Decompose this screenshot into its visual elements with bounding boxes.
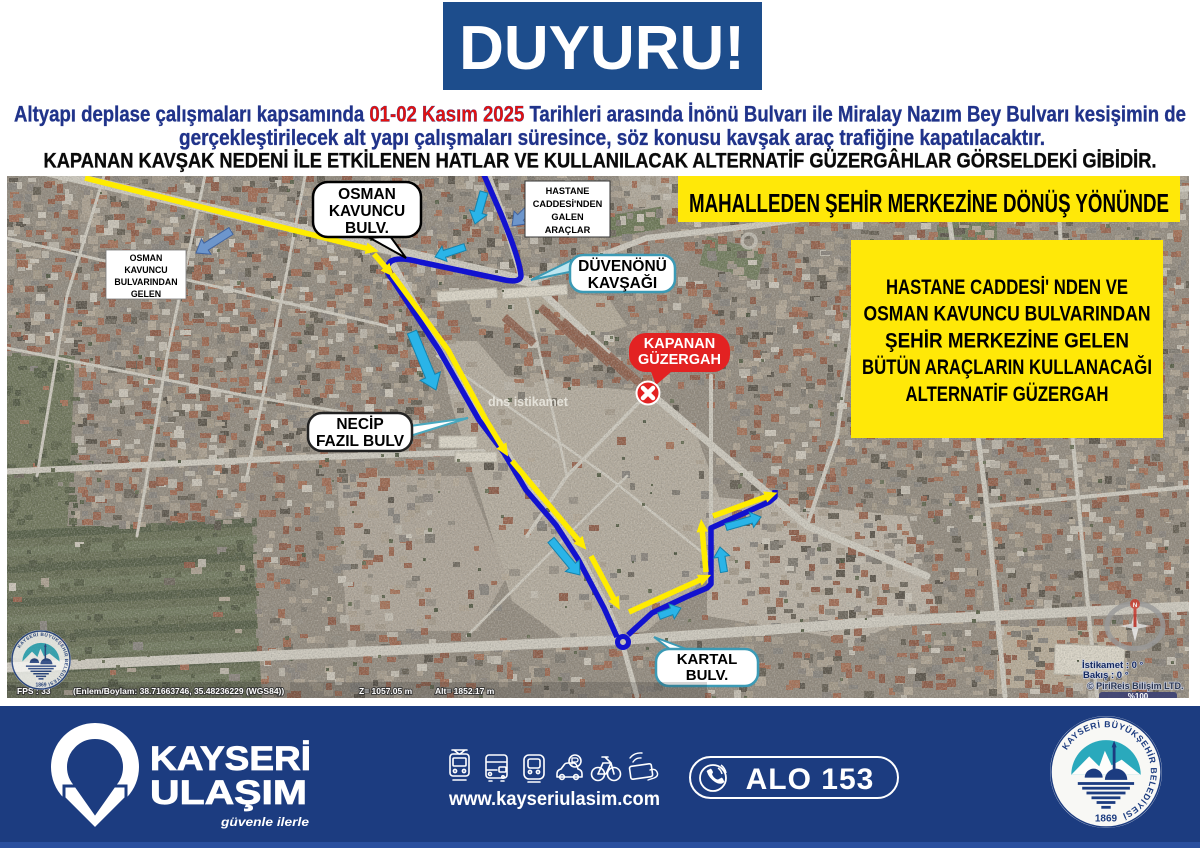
svg-text:KAPANAN: KAPANAN bbox=[644, 336, 715, 352]
svg-text:ALTERNATİF GÜZERGAH: ALTERNATİF GÜZERGAH bbox=[906, 383, 1109, 406]
svg-text:KAVŞAĞI: KAVŞAĞI bbox=[588, 274, 657, 292]
svg-text:NECİP: NECİP bbox=[336, 416, 383, 433]
svg-text:Alt= 1852.17 m: Alt= 1852.17 m bbox=[435, 686, 495, 696]
svg-text:Bakış : 0 °: Bakış : 0 ° bbox=[1083, 670, 1129, 681]
svg-text:DUYURU!: DUYURU! bbox=[459, 14, 745, 83]
svg-text:1869: 1869 bbox=[35, 682, 46, 688]
svg-text:FAZIL BULV: FAZIL BULV bbox=[316, 433, 405, 450]
svg-text:Z= 1057.05 m: Z= 1057.05 m bbox=[359, 686, 413, 696]
svg-text:ARAÇLAR: ARAÇLAR bbox=[545, 225, 591, 235]
svg-text:N: N bbox=[1133, 602, 1138, 609]
svg-text:BULVARINDAN: BULVARINDAN bbox=[114, 277, 177, 287]
svg-text:KAVUNCU: KAVUNCU bbox=[124, 265, 167, 275]
svg-text:HASTANE: HASTANE bbox=[546, 186, 590, 196]
svg-text:BÜTÜN ARAÇLARIN KULLANACAĞI: BÜTÜN ARAÇLARIN KULLANACAĞI bbox=[862, 355, 1152, 379]
svg-text:CADDESİ'NDEN: CADDESİ'NDEN bbox=[533, 199, 603, 209]
svg-text:GELEN: GELEN bbox=[131, 289, 161, 299]
svg-text:BULV.: BULV. bbox=[686, 667, 729, 684]
svg-text:KAPANAN KAVŞAK NEDENİ İLE ETKİ: KAPANAN KAVŞAK NEDENİ İLE ETKİLENEN HATL… bbox=[44, 148, 1157, 173]
svg-text:ALO 153: ALO 153 bbox=[746, 763, 875, 796]
svg-text:OSMAN: OSMAN bbox=[338, 186, 396, 203]
svg-text:GÜZERGAH: GÜZERGAH bbox=[638, 351, 721, 368]
svg-text:HASTANE CADDESİ' NDEN VE: HASTANE CADDESİ' NDEN VE bbox=[886, 276, 1128, 299]
svg-text:KARTAL: KARTAL bbox=[677, 651, 738, 668]
svg-text:gerçekleştirilecek alt yapı ça: gerçekleştirilecek alt yapı çalışmaları … bbox=[179, 125, 1045, 150]
svg-text:OSMAN KAVUNCU BULVARINDAN: OSMAN KAVUNCU BULVARINDAN bbox=[864, 303, 1151, 326]
svg-text:ŞEHİR MERKEZİNE GELEN: ŞEHİR MERKEZİNE GELEN bbox=[885, 329, 1129, 352]
svg-text:dns istikamet: dns istikamet bbox=[488, 395, 569, 409]
svg-text:BULV.: BULV. bbox=[345, 220, 389, 237]
svg-text:GALEN: GALEN bbox=[551, 212, 584, 222]
svg-text:MAHALLEDEN ŞEHİR MERKEZİNE DÖN: MAHALLEDEN ŞEHİR MERKEZİNE DÖNÜŞ YÖNÜNDE bbox=[689, 188, 1169, 218]
svg-text:© PiriReis Bilişim LTD.: © PiriReis Bilişim LTD. bbox=[1087, 681, 1184, 691]
svg-text:KAYSERİ: KAYSERİ bbox=[150, 740, 311, 778]
svg-text:güvenle ilerle: güvenle ilerle bbox=[220, 815, 310, 829]
svg-text:1869: 1869 bbox=[1095, 813, 1118, 824]
svg-text:OSMAN: OSMAN bbox=[130, 253, 163, 263]
svg-text:KAVUNCU: KAVUNCU bbox=[329, 203, 405, 220]
svg-text:DÜVENÖNÜ: DÜVENÖNÜ bbox=[578, 258, 667, 275]
svg-text:(Enlem/Boylam: 38.71663746, 35: (Enlem/Boylam: 38.71663746, 35.48236229 … bbox=[73, 686, 284, 696]
svg-text:Altyapı deplase çalışmaları ka: Altyapı deplase çalışmaları kapsamında 0… bbox=[14, 102, 1186, 127]
svg-text:www.kayseriulasim.com: www.kayseriulasim.com bbox=[448, 789, 660, 810]
svg-text:ULAŞIM: ULAŞIM bbox=[150, 774, 307, 812]
